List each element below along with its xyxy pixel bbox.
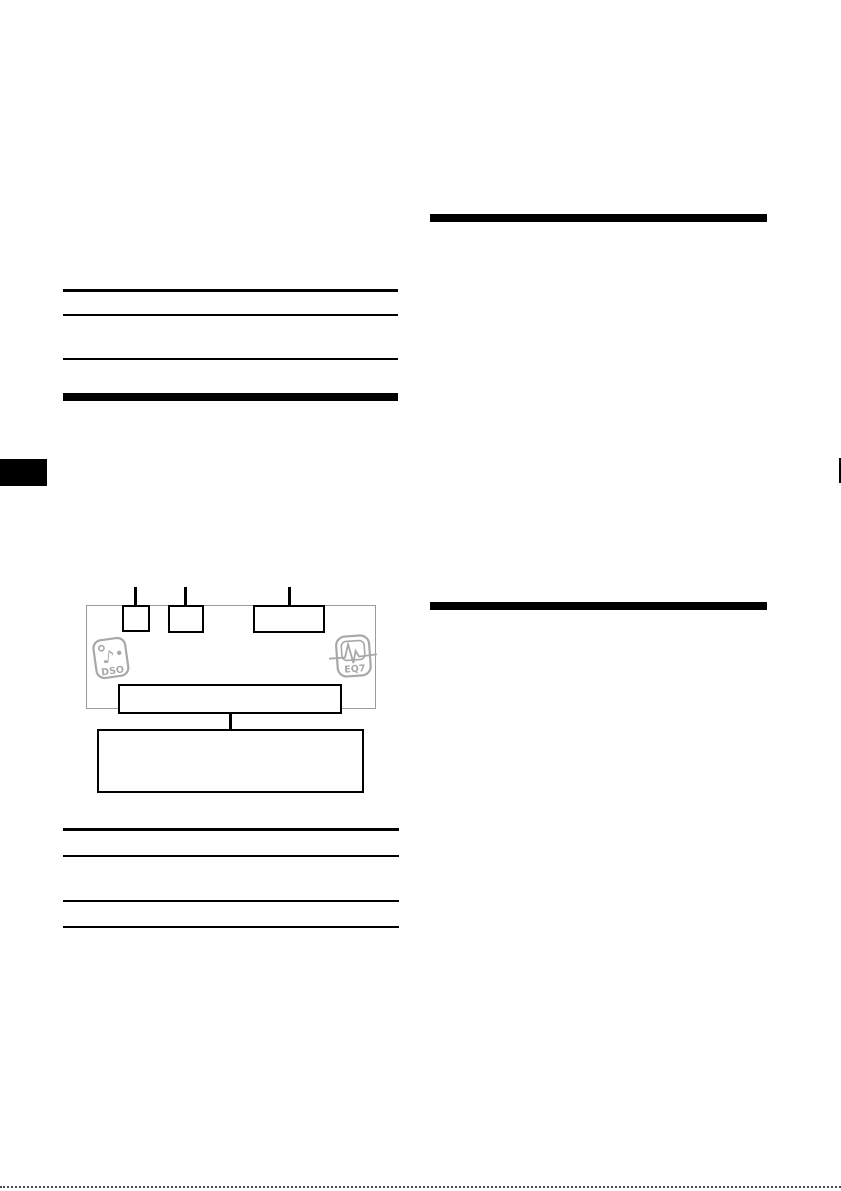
button2-leader-line	[184, 587, 187, 607]
dso-icon: ♪ DSO	[89, 633, 133, 685]
left-table1-row-rule	[63, 314, 398, 316]
left-table1-top-rule	[63, 289, 398, 292]
eq7-icon: EQ7	[329, 631, 377, 683]
left-section-header-bar	[63, 393, 398, 401]
button1-leader-line	[134, 587, 137, 607]
button1-callout-box	[122, 605, 150, 632]
left-table2-row-rule-1	[63, 855, 399, 857]
bottom-cut-line	[0, 1186, 841, 1188]
left-table2-row-rule-2	[63, 900, 399, 902]
display-leader-line	[229, 714, 232, 730]
right-section-header-bar-2	[430, 602, 767, 610]
eq7-badge-label: EQ7	[344, 663, 366, 675]
display-annotation-box	[97, 729, 364, 793]
left-table1-bottom-rule	[63, 358, 398, 360]
right-section-header-bar-1	[430, 214, 767, 222]
left-table2-bottom-rule	[63, 926, 399, 928]
button3-callout-box	[253, 605, 325, 633]
button2-callout-box	[168, 605, 204, 633]
dso-dot-icon	[117, 650, 122, 655]
left-table2-top-rule	[63, 828, 399, 831]
display-window-callout-box	[118, 684, 342, 714]
button3-leader-line	[288, 587, 291, 607]
left-edge-index-tab	[0, 459, 47, 486]
manual-page: ♪ DSO EQ7	[0, 0, 841, 1191]
